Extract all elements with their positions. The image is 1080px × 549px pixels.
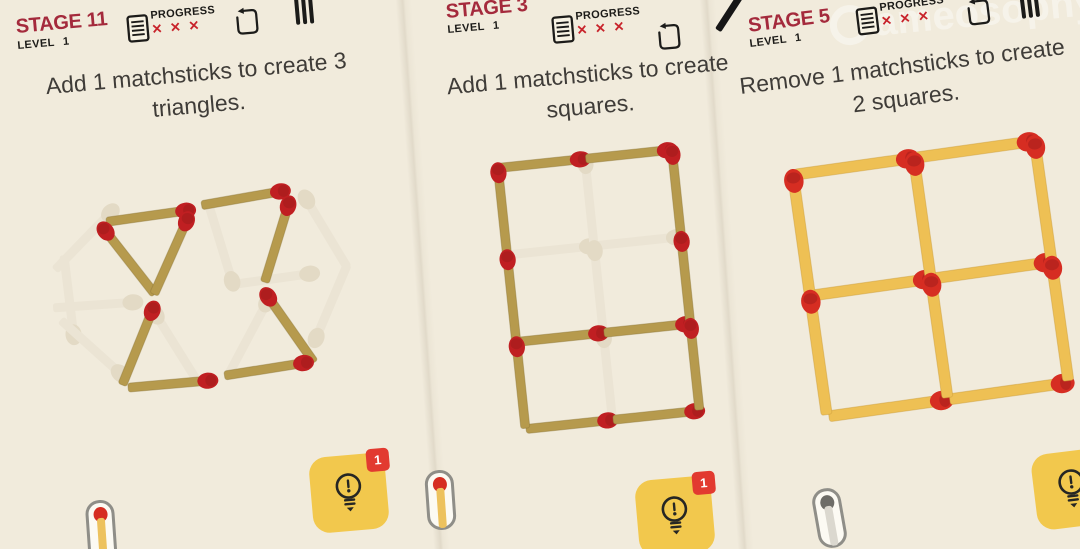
hint-count-badge: 1 bbox=[691, 470, 716, 495]
matchstick[interactable] bbox=[1024, 134, 1061, 261]
progress-note-icon bbox=[125, 13, 150, 44]
restart-icon bbox=[233, 6, 262, 38]
restart-icon bbox=[964, 0, 993, 29]
restart-button[interactable] bbox=[233, 6, 262, 41]
hint-button[interactable] bbox=[1030, 447, 1080, 532]
matchstick[interactable] bbox=[256, 284, 321, 367]
matchstick[interactable] bbox=[516, 324, 610, 350]
matchstick[interactable] bbox=[811, 268, 938, 305]
matchstick[interactable] bbox=[783, 168, 820, 295]
matchstick[interactable] bbox=[508, 335, 534, 429]
matchstick[interactable] bbox=[948, 372, 1075, 409]
matchstick[interactable] bbox=[257, 193, 299, 284]
matchstick[interactable] bbox=[682, 317, 708, 411]
matchstick[interactable] bbox=[115, 298, 164, 388]
matchstick[interactable] bbox=[1041, 255, 1078, 382]
matchstick[interactable] bbox=[903, 151, 940, 278]
match-meter-stick bbox=[823, 505, 838, 546]
matchstick[interactable] bbox=[147, 208, 199, 297]
lightbulb-icon bbox=[1052, 465, 1080, 513]
matchstick[interactable] bbox=[663, 143, 689, 237]
matchstick[interactable] bbox=[931, 251, 1058, 288]
menu-icon[interactable] bbox=[1019, 0, 1040, 19]
restart-button[interactable] bbox=[964, 0, 994, 32]
ghost-slot bbox=[585, 239, 611, 333]
match-meter bbox=[424, 469, 457, 531]
progress-note-icon bbox=[854, 5, 880, 37]
matchstick[interactable] bbox=[93, 218, 161, 299]
matchstick[interactable] bbox=[800, 289, 837, 416]
matchstick[interactable] bbox=[498, 150, 592, 176]
menu-icon[interactable] bbox=[294, 0, 314, 25]
matchstick[interactable] bbox=[672, 230, 698, 324]
ghost-slot bbox=[229, 264, 321, 293]
matchstick[interactable] bbox=[612, 402, 706, 428]
progress-crosses: ✕ ✕ ✕ bbox=[151, 17, 217, 37]
hint-count-badge: 1 bbox=[365, 447, 390, 472]
hint-button[interactable]: 1 bbox=[634, 475, 716, 549]
matchstick[interactable] bbox=[498, 248, 524, 342]
matchstick[interactable] bbox=[127, 372, 219, 396]
lightbulb-icon bbox=[330, 470, 368, 517]
matchstick[interactable] bbox=[489, 161, 515, 255]
matchstick[interactable] bbox=[794, 148, 921, 185]
matchstick[interactable] bbox=[828, 389, 955, 426]
ghost-slot bbox=[294, 186, 354, 272]
lightbulb-icon bbox=[656, 493, 694, 540]
progress-crosses: ✕ ✕ ✕ bbox=[576, 18, 642, 38]
progress-note-icon bbox=[550, 14, 575, 45]
match-meter-stick bbox=[96, 518, 107, 549]
restart-icon bbox=[655, 21, 684, 53]
matchstick[interactable] bbox=[914, 131, 1041, 168]
match-meter-stick bbox=[436, 488, 447, 528]
matchstick[interactable] bbox=[525, 411, 619, 437]
ghost-slot bbox=[201, 202, 243, 293]
matchstick[interactable] bbox=[920, 272, 957, 399]
hint-button[interactable]: 1 bbox=[308, 452, 390, 534]
game-screenshot-collage: ameosophy STAGE 11 LEVEL 1 PROGRESS ✕ ✕ … bbox=[0, 0, 1080, 549]
